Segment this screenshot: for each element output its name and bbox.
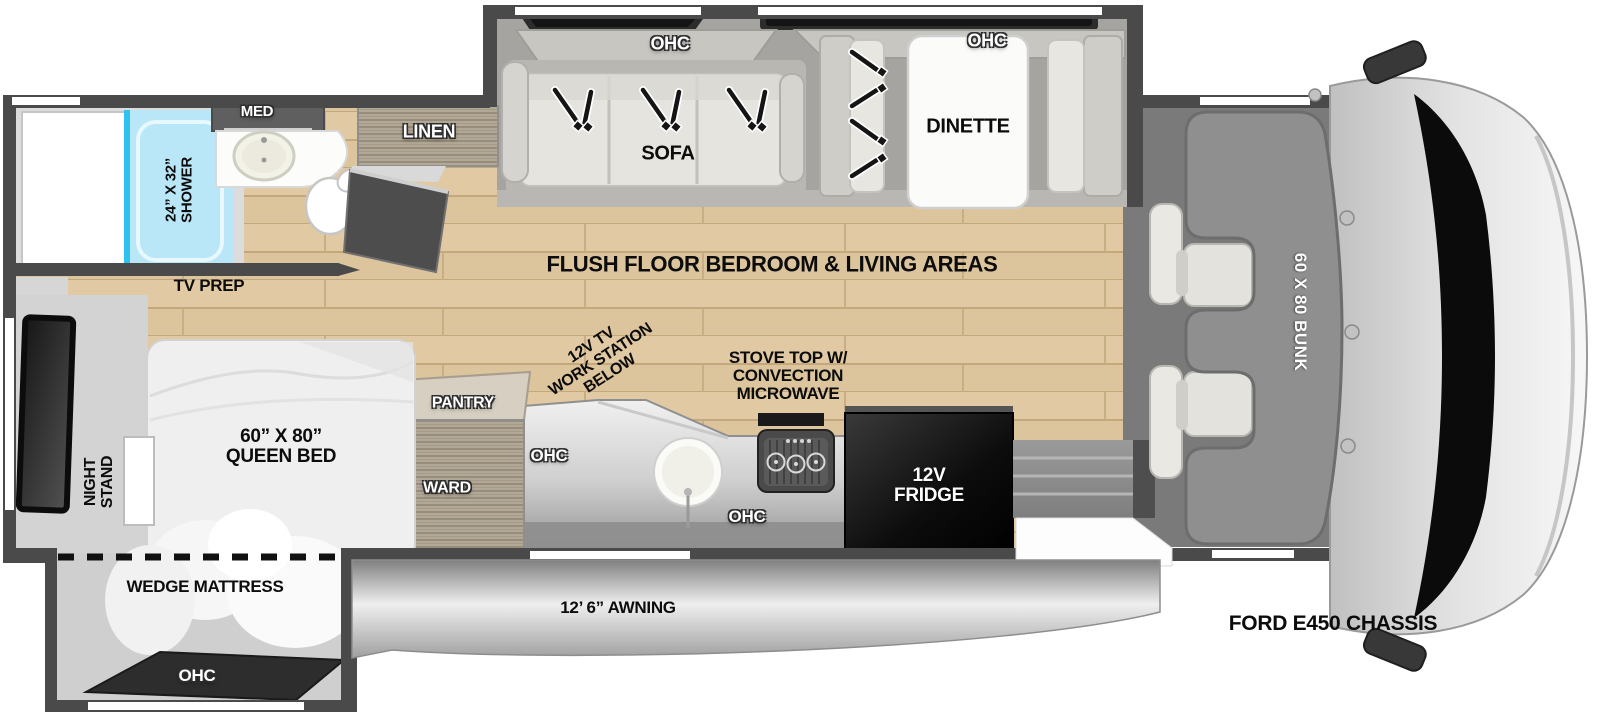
queen-bed-label: 60” X 80” QUEEN BED — [226, 427, 336, 467]
shower-pan — [22, 112, 138, 264]
stove-top — [758, 413, 834, 492]
fridge-label: 12V FRIDGE — [894, 466, 964, 506]
ohc-sofa-label: OHC — [650, 35, 689, 54]
dinette-label: DINETTE — [926, 117, 1009, 138]
ohc-kitchen-lower-label: OHC — [729, 508, 766, 526]
chassis-label: FORD E450 CHASSIS — [1229, 613, 1437, 635]
entry-steps — [1013, 440, 1155, 518]
rv-floorplan: OHC OHC SOFA DINETTE FLUSH FLOOR BEDROOM… — [0, 0, 1600, 712]
bunk-label: 60 X 80 BUNK — [1291, 253, 1309, 371]
linen-label: LINEN — [403, 123, 456, 142]
ohc-bedroom-label: OHC — [179, 667, 216, 685]
wedge-mattress-label: WEDGE MATTRESS — [127, 578, 284, 596]
ohc-kitchen-upper-label: OHC — [531, 447, 568, 465]
pantry-label: PANTRY — [432, 396, 494, 413]
night-stand — [124, 437, 154, 525]
bunk-over-cab — [1186, 112, 1342, 544]
sofa-label: SOFA — [641, 144, 694, 165]
tv-prep-label: TV PREP — [174, 277, 245, 295]
ward-label: WARD — [423, 481, 471, 498]
shower-label: 24” X 32” SHOWER — [163, 157, 195, 223]
window-strip — [88, 702, 304, 710]
ohc-dinette-label: OHC — [967, 32, 1006, 51]
night-stand-label: NIGHT STAND — [83, 456, 117, 508]
cab-body — [1330, 39, 1587, 674]
awning — [352, 560, 1160, 658]
stove-label: STOVE TOP W/ CONVECTION MICROWAVE — [729, 349, 847, 403]
flush-floor-label: FLUSH FLOOR BEDROOM & LIVING AREAS — [547, 252, 998, 275]
awning-label: 12’ 6” AWNING — [560, 599, 675, 617]
med-label: MED — [241, 104, 273, 120]
bedroom-tv — [19, 317, 74, 511]
